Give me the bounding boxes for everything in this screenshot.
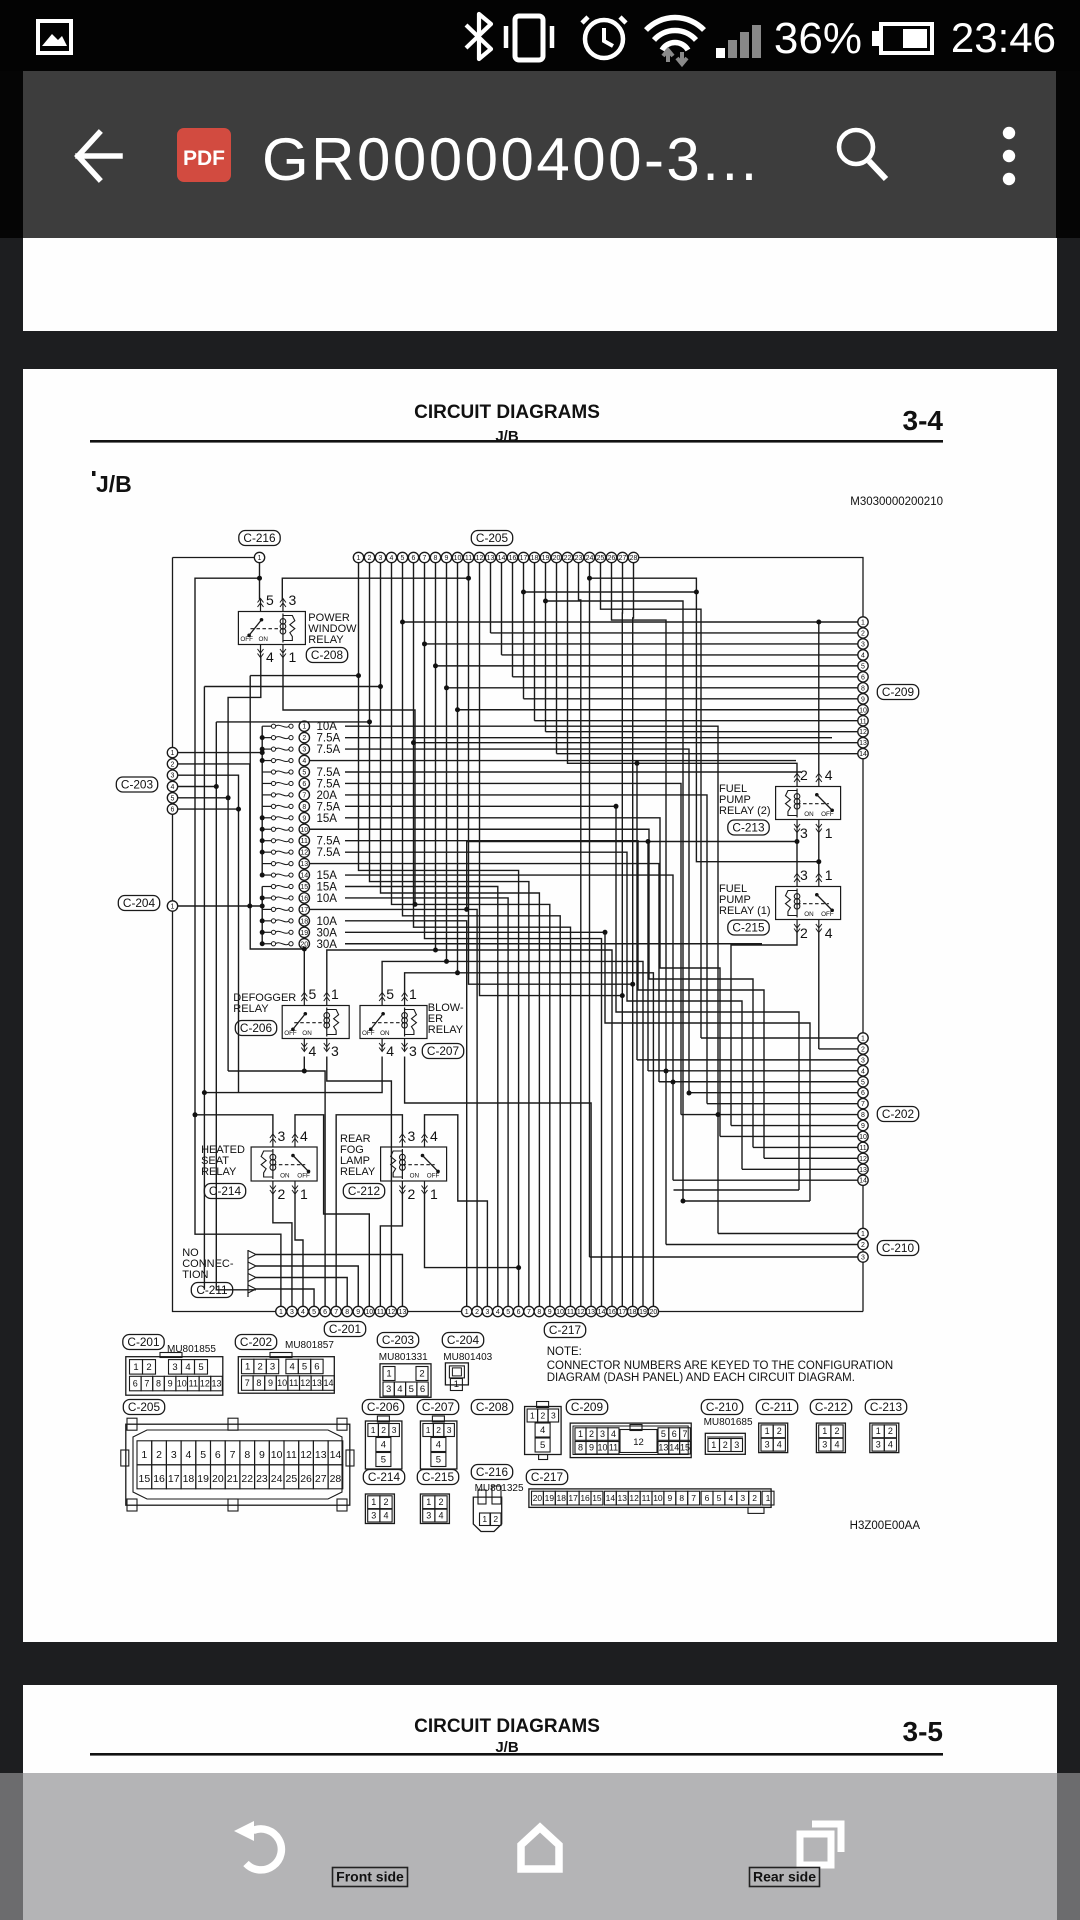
svg-text:3: 3: [278, 1128, 286, 1144]
svg-text:7.5A: 7.5A: [317, 767, 341, 779]
svg-text:C-217: C-217: [531, 1470, 563, 1484]
svg-text:1: 1: [279, 1309, 283, 1316]
svg-text:3: 3: [876, 1440, 881, 1450]
svg-text:5: 5: [302, 770, 306, 777]
svg-text:MU801403: MU801403: [443, 1352, 492, 1363]
svg-text:13: 13: [859, 740, 867, 747]
svg-text:11: 11: [377, 1309, 384, 1316]
svg-text:3: 3: [485, 1309, 489, 1316]
svg-text:4: 4: [834, 1440, 839, 1450]
svg-text:7: 7: [302, 792, 306, 799]
svg-text:15: 15: [300, 884, 308, 891]
svg-text:9: 9: [589, 1443, 594, 1453]
svg-text:7: 7: [861, 1101, 865, 1108]
svg-text:C-203: C-203: [121, 778, 154, 792]
svg-text:13: 13: [658, 1443, 668, 1453]
svg-text:6: 6: [861, 674, 865, 681]
svg-text:9: 9: [302, 815, 306, 822]
svg-text:14: 14: [859, 1178, 867, 1185]
svg-text:5: 5: [198, 1362, 203, 1373]
svg-text:10A: 10A: [317, 721, 338, 733]
svg-text:OFF: OFF: [240, 636, 253, 643]
svg-text:DIAGRAM (DASH PANEL) AND EACH: DIAGRAM (DASH PANEL) AND EACH CIRCUIT DI…: [547, 1372, 855, 1384]
svg-text:3: 3: [392, 1425, 397, 1435]
svg-text:7.5A: 7.5A: [317, 733, 341, 745]
svg-text:1: 1: [289, 649, 297, 665]
svg-text:1: 1: [426, 1497, 431, 1507]
svg-text:11: 11: [642, 1493, 651, 1503]
svg-text:12: 12: [629, 1493, 639, 1503]
svg-text:6: 6: [861, 1090, 865, 1097]
svg-text:8: 8: [345, 1309, 349, 1316]
svg-text:C-212: C-212: [348, 1184, 380, 1198]
svg-text:8: 8: [861, 1112, 865, 1119]
svg-text:20: 20: [649, 1309, 657, 1316]
svg-text:NOTE:: NOTE:: [547, 1346, 582, 1358]
svg-text:15A: 15A: [317, 882, 338, 894]
svg-text:6: 6: [420, 1384, 425, 1395]
svg-text:15A: 15A: [317, 813, 338, 825]
svg-text:2: 2: [861, 1046, 865, 1053]
svg-text:9: 9: [356, 1309, 360, 1316]
svg-text:5: 5: [309, 986, 317, 1002]
svg-text:2: 2: [383, 1497, 388, 1507]
svg-text:5: 5: [266, 592, 274, 608]
svg-text:14: 14: [859, 751, 867, 758]
svg-text:1: 1: [371, 1497, 376, 1507]
svg-text:C-204: C-204: [123, 896, 156, 910]
svg-text:19: 19: [300, 930, 308, 937]
svg-text:3: 3: [551, 1410, 556, 1420]
svg-text:14: 14: [498, 555, 506, 562]
svg-text:4: 4: [390, 555, 394, 562]
svg-text:28: 28: [330, 1473, 342, 1485]
svg-text:4: 4: [186, 1449, 192, 1461]
svg-text:13: 13: [399, 1309, 407, 1316]
svg-text:1: 1: [711, 1440, 716, 1450]
svg-text:3: 3: [822, 1440, 827, 1450]
svg-text:C-214: C-214: [209, 1184, 242, 1198]
svg-text:2: 2: [752, 1493, 757, 1503]
svg-text:14: 14: [606, 1493, 616, 1503]
svg-text:23: 23: [575, 555, 583, 562]
svg-text:ON: ON: [804, 911, 814, 918]
svg-text:3-5: 3-5: [903, 1716, 943, 1747]
svg-text:4: 4: [301, 1309, 305, 1316]
svg-text:PDF: PDF: [183, 147, 225, 170]
svg-text:Front side: Front side: [336, 1869, 404, 1885]
svg-text:4: 4: [728, 1493, 733, 1503]
svg-text:18: 18: [183, 1473, 195, 1485]
svg-text:C-207: C-207: [427, 1044, 459, 1058]
svg-text:1: 1: [430, 1186, 438, 1202]
svg-text:10: 10: [597, 1443, 607, 1453]
svg-text:10: 10: [271, 1449, 283, 1461]
svg-text:10: 10: [859, 707, 867, 714]
svg-text:MU801685: MU801685: [704, 1417, 753, 1428]
svg-text:C-204: C-204: [447, 1333, 480, 1347]
svg-text:16: 16: [300, 895, 308, 902]
svg-text:13: 13: [300, 861, 308, 868]
svg-text:C-214: C-214: [368, 1470, 401, 1484]
svg-text:5: 5: [540, 1440, 545, 1451]
svg-text:23:46: 23:46: [951, 14, 1056, 61]
svg-text:2: 2: [888, 1426, 893, 1436]
svg-text:1: 1: [409, 986, 417, 1002]
svg-text:3: 3: [447, 1425, 452, 1435]
svg-text:4: 4: [777, 1440, 782, 1450]
svg-text:5: 5: [381, 1455, 386, 1466]
svg-text:OFF: OFF: [427, 1173, 440, 1180]
svg-text:C-202: C-202: [882, 1107, 914, 1121]
svg-text:22: 22: [564, 555, 572, 562]
svg-text:18: 18: [300, 918, 308, 925]
svg-text:2: 2: [146, 1362, 151, 1373]
svg-text:OFF: OFF: [297, 1173, 310, 1180]
svg-text:4: 4: [861, 652, 865, 659]
svg-text:17: 17: [618, 1309, 626, 1316]
svg-text:1: 1: [302, 724, 306, 731]
svg-text:3: 3: [734, 1440, 739, 1450]
svg-text:C-206: C-206: [367, 1400, 400, 1414]
svg-text:10A: 10A: [317, 893, 338, 905]
svg-text:1: 1: [825, 825, 833, 841]
svg-text:16: 16: [580, 1493, 590, 1503]
svg-text:5: 5: [861, 663, 865, 670]
svg-text:10A: 10A: [317, 916, 338, 928]
svg-text:18: 18: [531, 555, 539, 562]
svg-text:12: 12: [633, 1437, 644, 1448]
svg-text:16: 16: [608, 1309, 616, 1316]
svg-text:1: 1: [861, 1036, 865, 1043]
svg-text:7: 7: [691, 1493, 696, 1503]
svg-text:3: 3: [371, 1510, 376, 1520]
svg-text:4: 4: [888, 1440, 893, 1450]
svg-text:MU801857: MU801857: [285, 1340, 334, 1351]
svg-text:10: 10: [653, 1493, 663, 1503]
svg-text:9: 9: [548, 1309, 552, 1316]
svg-text:11: 11: [859, 1145, 866, 1152]
svg-text:5: 5: [717, 1493, 722, 1503]
svg-text:11: 11: [859, 718, 866, 725]
svg-text:1: 1: [133, 1362, 138, 1373]
svg-text:C-210: C-210: [882, 1241, 915, 1255]
svg-text:6: 6: [215, 1449, 221, 1461]
svg-text:RELAY (2): RELAY (2): [719, 805, 771, 817]
svg-text:24: 24: [271, 1473, 283, 1485]
svg-text:15: 15: [139, 1473, 151, 1485]
svg-text:Rear side: Rear side: [753, 1869, 816, 1885]
svg-text:8: 8: [434, 555, 438, 562]
svg-text:8: 8: [679, 1493, 684, 1503]
svg-text:8: 8: [256, 1378, 261, 1388]
svg-text:17: 17: [568, 1493, 578, 1503]
svg-text:7: 7: [144, 1379, 149, 1389]
svg-text:C-213: C-213: [870, 1400, 903, 1414]
svg-text:12: 12: [388, 1309, 396, 1316]
svg-text:C-215: C-215: [422, 1470, 455, 1484]
svg-text:C-212: C-212: [815, 1400, 847, 1414]
svg-text:10: 10: [300, 827, 308, 834]
svg-text:C-208: C-208: [476, 1400, 509, 1414]
svg-text:5: 5: [661, 1429, 666, 1439]
svg-text:9: 9: [445, 555, 449, 562]
svg-text:RELAY (1): RELAY (1): [719, 905, 771, 917]
svg-text:6: 6: [302, 781, 306, 788]
svg-text:9: 9: [268, 1378, 273, 1388]
svg-text:2: 2: [436, 1425, 441, 1435]
svg-text:15: 15: [680, 1443, 690, 1453]
svg-text:18: 18: [557, 1493, 567, 1503]
svg-text:10: 10: [365, 1309, 373, 1316]
svg-text:17: 17: [168, 1473, 180, 1485]
svg-text:2: 2: [589, 1429, 594, 1439]
svg-text:4: 4: [430, 1128, 438, 1144]
svg-text:5: 5: [409, 1384, 414, 1395]
svg-text:2: 2: [408, 1186, 416, 1202]
svg-text:3: 3: [171, 773, 175, 780]
svg-text:C-207: C-207: [422, 1400, 454, 1414]
svg-text:1: 1: [861, 620, 865, 627]
svg-text:J/B: J/B: [96, 471, 132, 497]
svg-text:5: 5: [436, 1455, 441, 1466]
svg-text:4: 4: [309, 1043, 317, 1059]
svg-text:C-205: C-205: [476, 531, 509, 545]
svg-text:19: 19: [545, 1493, 555, 1503]
svg-text:19: 19: [542, 555, 550, 562]
svg-text:1: 1: [876, 1426, 881, 1436]
svg-text:11: 11: [465, 555, 472, 562]
svg-text:5: 5: [506, 1309, 510, 1316]
svg-text:3: 3: [600, 1429, 605, 1439]
svg-text:6: 6: [171, 807, 175, 814]
svg-text:2: 2: [438, 1497, 443, 1507]
svg-text:4: 4: [397, 1384, 402, 1395]
svg-text:8: 8: [244, 1449, 250, 1461]
svg-text:25: 25: [286, 1473, 298, 1485]
svg-text:5: 5: [302, 1362, 307, 1373]
svg-text:1: 1: [578, 1429, 583, 1439]
svg-text:1: 1: [357, 555, 361, 562]
svg-text:5: 5: [171, 795, 175, 802]
svg-text:7.5A: 7.5A: [317, 836, 341, 848]
svg-text:1: 1: [765, 1426, 770, 1436]
svg-text:1: 1: [426, 1425, 431, 1435]
svg-text:4: 4: [386, 1043, 394, 1059]
svg-text:20: 20: [533, 1493, 543, 1503]
svg-text:C-203: C-203: [382, 1333, 415, 1347]
svg-text:C-206: C-206: [240, 1021, 273, 1035]
svg-text:3: 3: [302, 747, 306, 754]
svg-text:1: 1: [171, 750, 175, 757]
svg-text:18: 18: [629, 1309, 637, 1316]
svg-text:1: 1: [482, 1514, 487, 1524]
svg-text:1: 1: [141, 1449, 147, 1461]
svg-text:6: 6: [412, 555, 416, 562]
svg-text:4: 4: [438, 1510, 443, 1520]
svg-text:4: 4: [185, 1362, 190, 1373]
svg-text:2: 2: [278, 1186, 286, 1202]
svg-text:10: 10: [177, 1379, 187, 1389]
svg-text:MU801325: MU801325: [475, 1483, 524, 1494]
svg-text:3: 3: [765, 1440, 770, 1450]
svg-text:14: 14: [323, 1378, 333, 1388]
svg-text:4: 4: [266, 649, 274, 665]
svg-text:36%: 36%: [774, 14, 862, 63]
svg-text:OFF: OFF: [362, 1030, 375, 1037]
svg-text:OFF: OFF: [821, 911, 834, 918]
svg-text:6: 6: [314, 1362, 319, 1373]
svg-text:1: 1: [822, 1426, 827, 1436]
svg-text:1: 1: [766, 1493, 771, 1503]
svg-text:CONNECTOR NUMBERS ARE KEYED TO: CONNECTOR NUMBERS ARE KEYED TO THE CONFI…: [547, 1360, 894, 1372]
svg-text:5: 5: [200, 1449, 206, 1461]
svg-text:7: 7: [423, 555, 427, 562]
svg-text:13: 13: [587, 1309, 595, 1316]
svg-text:C-209: C-209: [571, 1400, 603, 1414]
svg-text:4: 4: [825, 767, 833, 783]
svg-text:CIRCUIT DIAGRAMS: CIRCUIT DIAGRAMS: [414, 402, 600, 423]
svg-text:13: 13: [211, 1379, 221, 1389]
svg-text:M3030000200210: M3030000200210: [850, 496, 943, 508]
svg-text:2: 2: [800, 925, 808, 941]
svg-text:7.5A: 7.5A: [317, 847, 341, 859]
svg-text:7.5A: 7.5A: [317, 801, 341, 813]
svg-text:7: 7: [527, 1309, 531, 1316]
svg-text:8: 8: [861, 685, 865, 692]
svg-text:12: 12: [300, 850, 308, 857]
svg-text:22: 22: [241, 1473, 253, 1485]
svg-text:C-216: C-216: [243, 531, 276, 545]
svg-text:C-213: C-213: [732, 821, 765, 835]
svg-text:4: 4: [436, 1440, 441, 1451]
svg-text:19: 19: [639, 1309, 647, 1316]
svg-text:3: 3: [408, 1128, 416, 1144]
svg-text:ON: ON: [410, 1173, 420, 1180]
svg-text:RELAY: RELAY: [428, 1024, 464, 1036]
svg-text:2: 2: [800, 767, 808, 783]
svg-text:2: 2: [171, 761, 175, 768]
svg-text:4: 4: [302, 758, 306, 765]
svg-text:1: 1: [465, 1309, 469, 1316]
svg-text:2: 2: [493, 1514, 498, 1524]
svg-text:1: 1: [371, 1425, 376, 1435]
svg-text:1: 1: [530, 1410, 535, 1420]
svg-text:4: 4: [289, 1362, 294, 1373]
svg-text:3: 3: [379, 555, 383, 562]
svg-text:3: 3: [409, 1043, 417, 1059]
svg-text:1: 1: [171, 904, 175, 911]
svg-text:2: 2: [419, 1369, 424, 1380]
svg-text:4: 4: [496, 1309, 500, 1316]
svg-text:2: 2: [257, 1362, 262, 1373]
svg-text:MU801855: MU801855: [167, 1344, 216, 1355]
svg-text:2: 2: [475, 1309, 479, 1316]
svg-text:C-201: C-201: [329, 1322, 361, 1336]
svg-text:6: 6: [517, 1309, 521, 1316]
svg-text:30A: 30A: [317, 939, 338, 951]
svg-text:C-202: C-202: [240, 1335, 272, 1349]
svg-text:8: 8: [537, 1309, 541, 1316]
svg-text:5: 5: [386, 986, 394, 1002]
svg-text:ON: ON: [380, 1030, 390, 1037]
svg-text:25: 25: [597, 555, 605, 562]
svg-text:2: 2: [834, 1426, 839, 1436]
svg-text:C-216: C-216: [476, 1465, 509, 1479]
svg-text:26: 26: [300, 1473, 312, 1485]
svg-text:3: 3: [861, 641, 865, 648]
svg-text:30A: 30A: [317, 927, 338, 939]
svg-text:1: 1: [258, 555, 262, 562]
svg-text:MU801331: MU801331: [379, 1352, 428, 1363]
svg-text:20: 20: [553, 555, 561, 562]
svg-text:12: 12: [476, 555, 484, 562]
svg-text:1: 1: [454, 1379, 459, 1390]
svg-text:1: 1: [825, 867, 833, 883]
svg-text:12: 12: [200, 1379, 210, 1389]
svg-text:4: 4: [861, 1068, 865, 1075]
svg-text:21: 21: [227, 1473, 239, 1485]
svg-text:3: 3: [861, 1255, 865, 1262]
svg-text:12: 12: [300, 1378, 310, 1388]
svg-text:C-205: C-205: [128, 1400, 161, 1414]
svg-text:4: 4: [383, 1510, 388, 1520]
svg-text:14: 14: [300, 873, 308, 880]
svg-text:5: 5: [401, 555, 405, 562]
svg-text:7: 7: [334, 1309, 338, 1316]
svg-text:ON: ON: [259, 636, 269, 643]
svg-text:11: 11: [286, 1449, 297, 1461]
svg-text:11: 11: [567, 1309, 574, 1316]
svg-text:3: 3: [331, 1043, 339, 1059]
svg-text:20A: 20A: [317, 790, 338, 802]
svg-text:12: 12: [859, 729, 867, 736]
svg-text:19: 19: [197, 1473, 209, 1485]
svg-text:4: 4: [825, 925, 833, 941]
svg-text:26: 26: [608, 555, 616, 562]
svg-text:C-209: C-209: [882, 685, 914, 699]
svg-text:1: 1: [861, 1231, 865, 1238]
svg-text:1: 1: [386, 1369, 391, 1380]
svg-text:6: 6: [133, 1379, 138, 1389]
svg-text:3: 3: [861, 1057, 865, 1064]
svg-text:3: 3: [800, 867, 808, 883]
svg-text:11: 11: [289, 1378, 298, 1388]
svg-text:2: 2: [381, 1425, 386, 1435]
svg-text:28: 28: [630, 555, 638, 562]
svg-text:13: 13: [618, 1493, 628, 1503]
svg-text:16: 16: [509, 555, 517, 562]
svg-text:6: 6: [705, 1493, 710, 1503]
svg-text:9: 9: [259, 1449, 265, 1461]
svg-text:3: 3: [172, 1362, 177, 1373]
svg-text:C-208: C-208: [311, 648, 344, 662]
svg-text:OFF: OFF: [284, 1030, 297, 1037]
svg-text:8: 8: [302, 804, 306, 811]
svg-text:3: 3: [290, 1309, 294, 1316]
svg-text:3: 3: [270, 1362, 275, 1373]
svg-text:13: 13: [859, 1167, 867, 1174]
svg-text:17: 17: [520, 555, 528, 562]
svg-text:RELAY: RELAY: [340, 1166, 376, 1178]
svg-text:11: 11: [609, 1443, 618, 1453]
svg-text:2: 2: [302, 735, 306, 742]
svg-text:ON: ON: [302, 1030, 312, 1037]
svg-text:C-215: C-215: [732, 921, 765, 935]
svg-text:15A: 15A: [317, 870, 338, 882]
svg-text:GR00000400-3...: GR00000400-3...: [262, 126, 760, 193]
svg-text:12: 12: [859, 1156, 867, 1163]
